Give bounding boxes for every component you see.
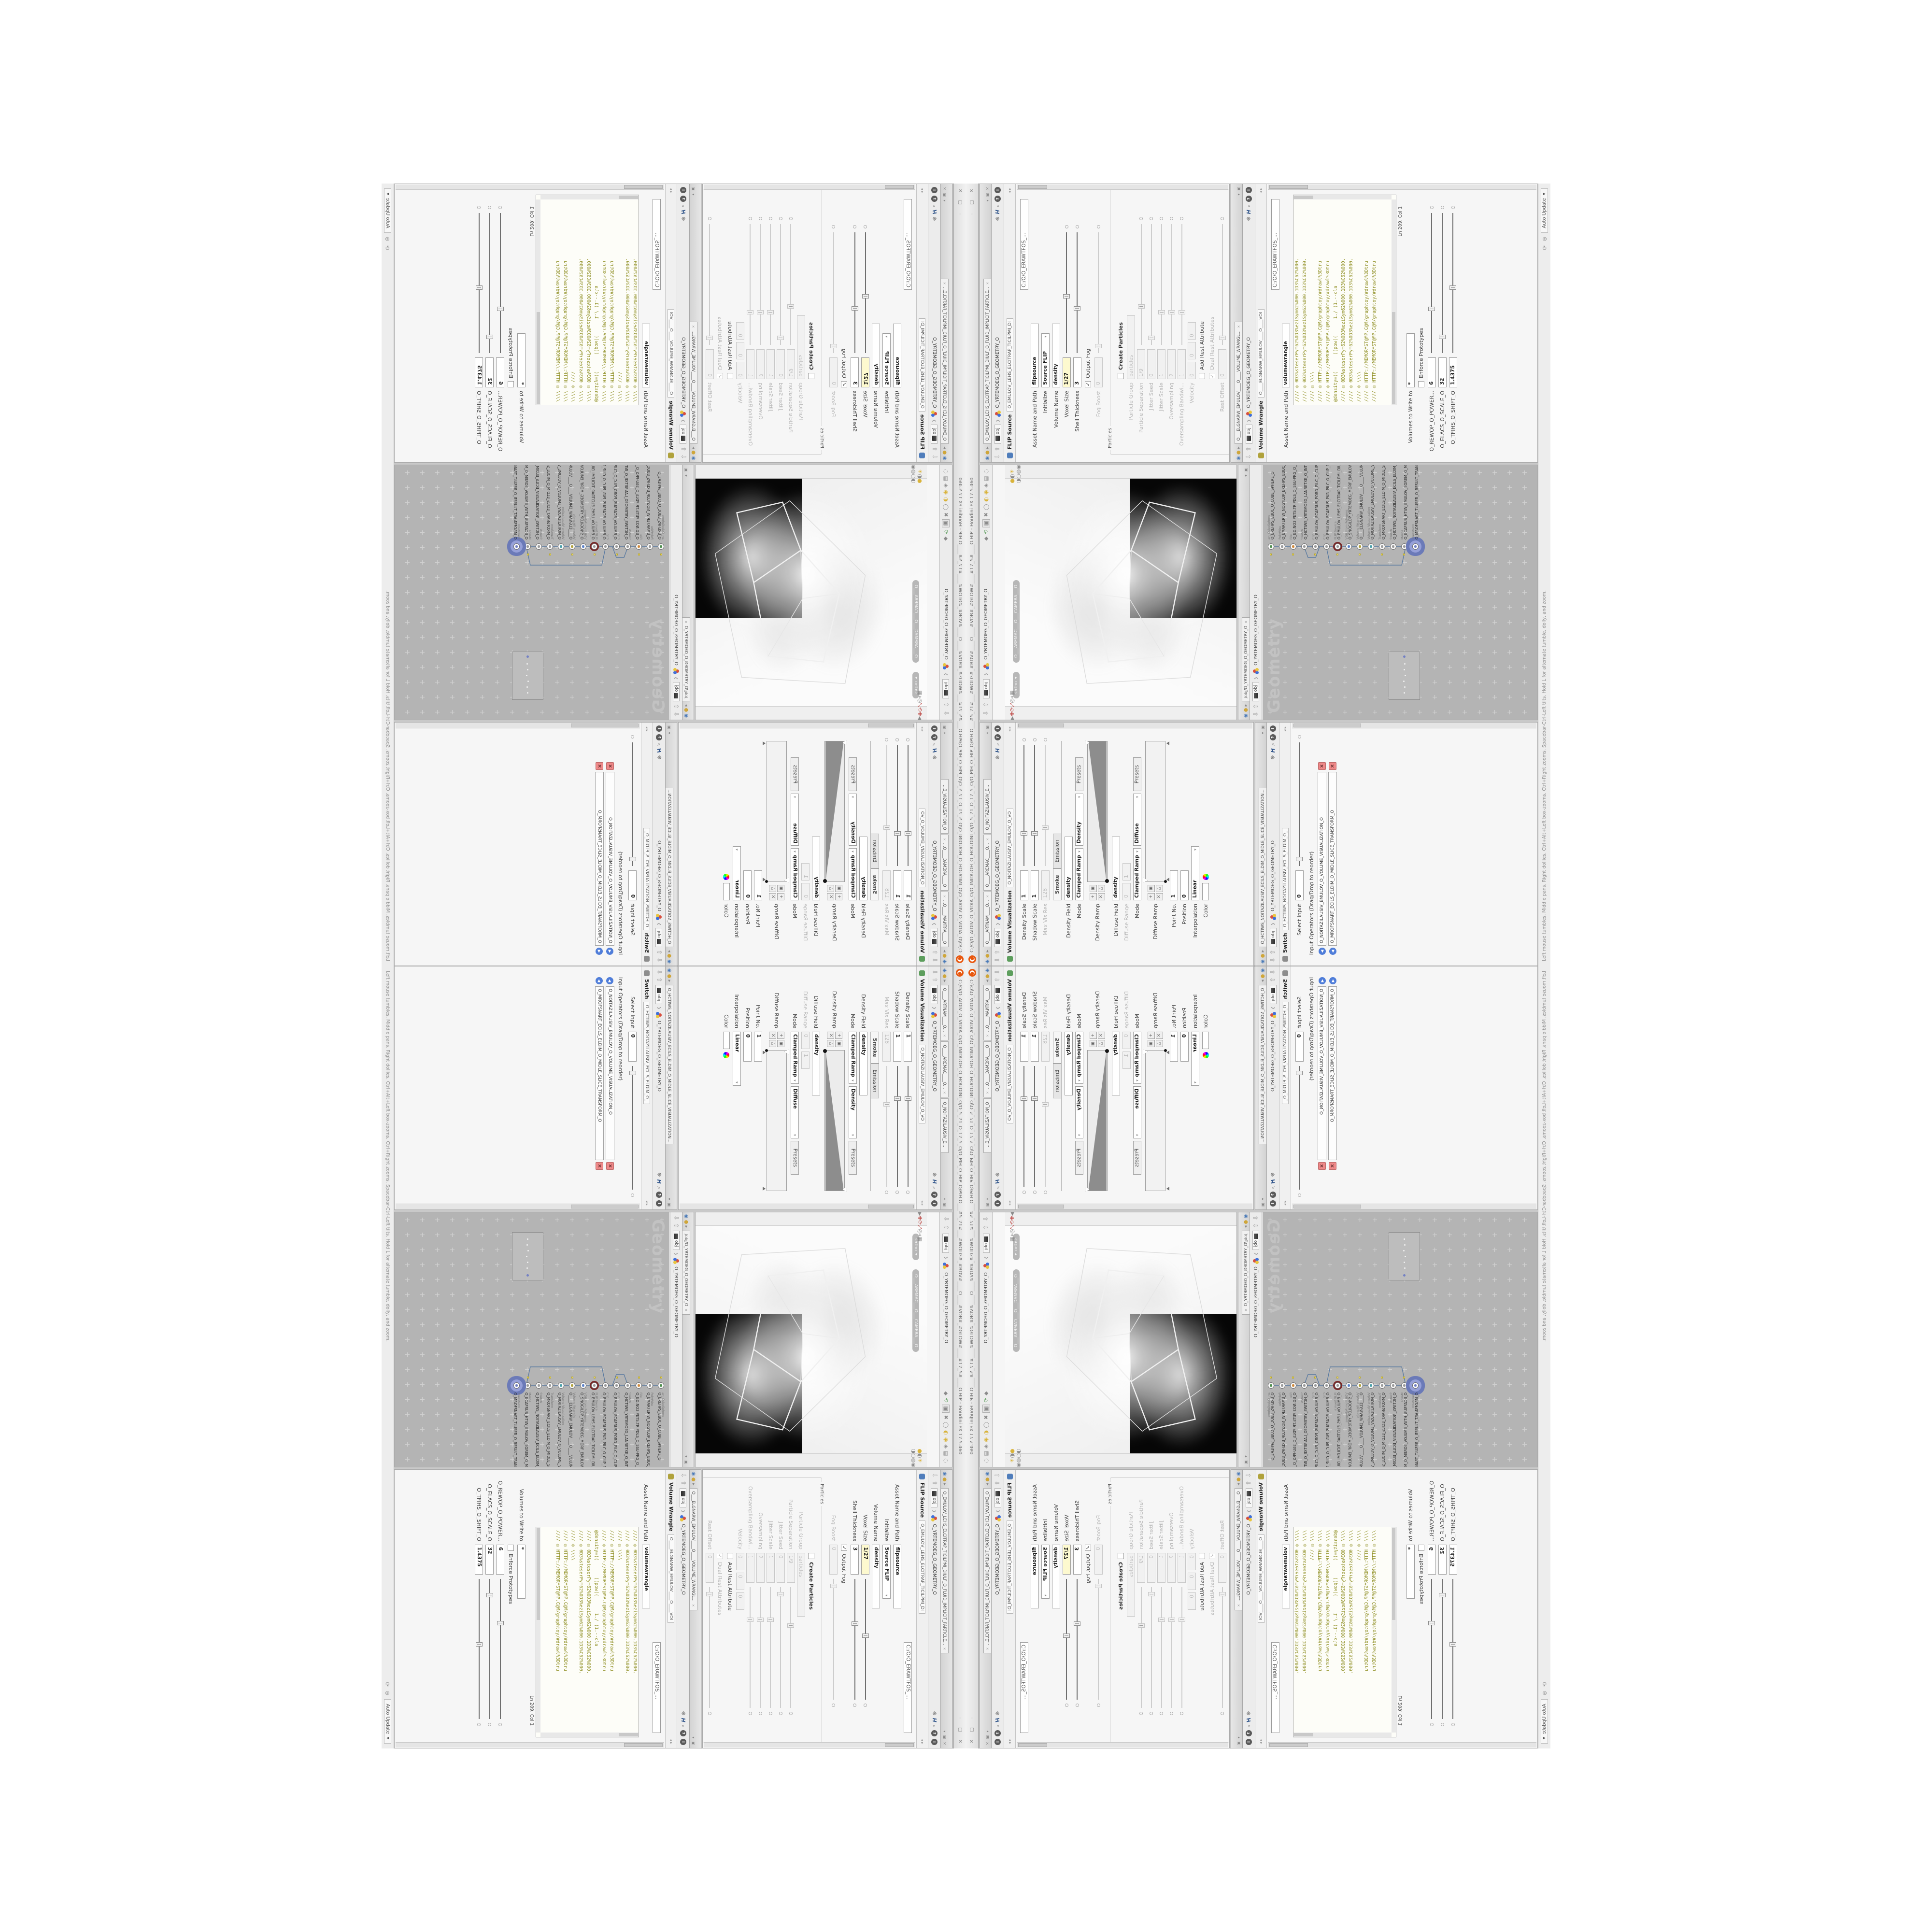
param-menu-nub[interactable] — [779, 1712, 782, 1715]
pane-tab[interactable]: O____AREMAC____O...✕ — [941, 1041, 949, 1097]
houdini-help-icon[interactable]: H — [994, 1718, 1001, 1722]
param-field[interactable]: 1 — [746, 349, 754, 379]
param-field[interactable]: particles — [797, 1553, 805, 1617]
param-field[interactable]: 128 — [1041, 1032, 1050, 1062]
param-menu-nub[interactable] — [1441, 206, 1444, 209]
reorder-input-button[interactable]: ◀ — [596, 948, 603, 955]
help-icon[interactable]: ? — [1270, 1192, 1276, 1198]
viewport-display-option-icon[interactable]: ● — [917, 479, 923, 483]
pane-menu-icon[interactable]: ◉ — [1261, 959, 1265, 964]
param-field[interactable]: 1/27 — [862, 1545, 870, 1575]
param-field[interactable]: 2 — [1167, 1553, 1176, 1583]
param-field[interactable]: 0 — [1094, 1545, 1103, 1575]
network-node[interactable]: ClipO_EMULOV_ECAFRUS_PORD_PILC_O_CLIP_DR… — [1310, 465, 1321, 550]
node-circle[interactable] — [1290, 1382, 1296, 1389]
presets-button[interactable]: Presets — [849, 1141, 857, 1175]
viewport-display-option-icon[interactable]: ◍ — [1015, 1458, 1022, 1463]
param-slider[interactable] — [1431, 213, 1432, 353]
cook-refresh-icon[interactable]: ⟳ — [1541, 1682, 1548, 1687]
param-slider[interactable] — [791, 1587, 792, 1708]
viewport-display-option-icon[interactable]: ● — [917, 1449, 923, 1453]
viewport-display-icon[interactable]: ✖ — [983, 1415, 989, 1420]
param-field[interactable]: 0 — [802, 1032, 810, 1049]
network-overview-map[interactable] — [1389, 652, 1420, 700]
pane-pin-icon[interactable]: ● — [683, 708, 688, 712]
param-field-2[interactable]: Diffuse — [791, 1086, 799, 1138]
param-menu-nub[interactable] — [885, 738, 889, 741]
param-field[interactable]: 6 — [1428, 357, 1436, 387]
node-circle[interactable] — [558, 543, 564, 550]
pane-tab[interactable]: O____ARTNAM____O...✕ — [983, 985, 991, 1041]
viewport-display-icon[interactable]: ◯ — [943, 504, 949, 510]
param-field[interactable]: * — [518, 1545, 526, 1599]
pane-menu-icon[interactable]: ◉ — [1236, 456, 1241, 460]
delete-input-button[interactable]: ✕ — [606, 762, 614, 770]
help-icon[interactable]: ? — [931, 734, 938, 740]
presets-button[interactable]: Presets — [791, 1141, 799, 1175]
help-icon[interactable]: ? — [931, 1192, 938, 1198]
viewport-display-option-icon[interactable]: ◉ — [1015, 1463, 1022, 1467]
breadcrumb-root[interactable]: obj — [1252, 682, 1259, 701]
node-circle[interactable] — [513, 1382, 520, 1389]
node-circle[interactable] — [1379, 543, 1385, 550]
param-slider[interactable] — [1442, 1579, 1443, 1719]
scrollbar[interactable] — [1292, 723, 1536, 728]
pane-shade-icon[interactable]: ▾ — [667, 732, 671, 734]
node-flag[interactable] — [527, 554, 529, 555]
param-field-3[interactable]: 0 — [736, 322, 744, 340]
param-menu-nub[interactable] — [1033, 1191, 1037, 1194]
param-menu-nub[interactable] — [864, 1704, 867, 1707]
viewport-display-option-icon[interactable]: ☀ — [1009, 1458, 1015, 1463]
param-field[interactable]: 1.4375 — [475, 1545, 483, 1575]
param-checkbox[interactable] — [808, 373, 814, 379]
param-field[interactable]: 128 — [1041, 870, 1050, 900]
network-node[interactable]: MergeO_ECAFRUS_HTIW_EMULOV_EGREM_O_MERGE… — [1399, 1382, 1410, 1467]
param-slider[interactable] — [1299, 1066, 1300, 1190]
houdini-help-icon[interactable]: H — [1246, 210, 1252, 214]
gear-icon[interactable]: ❋ — [656, 755, 662, 759]
param-slider[interactable] — [1181, 1587, 1182, 1708]
network-node[interactable]: TransformO_MROFSNART_ECILS_ELDIM_O_MIDLE… — [1377, 1382, 1388, 1467]
pane-tab[interactable]: O___ELGNARW_EMULOV____O____VOLUME_WRANGL… — [1235, 322, 1242, 444]
node-circle[interactable] — [1412, 543, 1419, 550]
param-field[interactable]: Clamped Ramp — [849, 848, 857, 900]
vex-code-editor[interactable]: //// ◎ 0D3%steserPym62%0D3%eziSym62%000.… — [1293, 195, 1396, 405]
param-menu-nub[interactable] — [1023, 738, 1026, 741]
pane-float-icon[interactable]: ▣ — [667, 1203, 671, 1207]
param-checkbox[interactable] — [727, 373, 733, 379]
param-field-2[interactable]: 1 — [1122, 1051, 1131, 1069]
breadcrumb-root[interactable]: obj — [931, 425, 938, 444]
ramp-key-marker[interactable] — [1105, 879, 1109, 883]
breadcrumb-root[interactable]: obj — [994, 928, 1001, 947]
network-node[interactable]: MergeO_ECAFRUS_HTIW_EMULOV_EGREM_O_MERGE… — [522, 1382, 533, 1467]
param-menu-nub[interactable] — [499, 206, 502, 209]
pane-pin-icon[interactable]: ● — [985, 451, 990, 455]
node-circle[interactable] — [625, 1382, 631, 1389]
node-name-tab[interactable]: O____ELGNARW_EMULOV____O____VOI — [1258, 1534, 1264, 1623]
param-menu-nub[interactable] — [1221, 1712, 1224, 1715]
info-icon[interactable]: i — [931, 1739, 938, 1745]
param-field[interactable]: 0 — [777, 349, 785, 379]
info-icon[interactable]: i — [994, 725, 1001, 732]
param-field[interactable]: * — [1406, 333, 1415, 387]
scrollbar[interactable] — [1017, 723, 1252, 728]
nav-forward-icon[interactable]: ⇧ — [1253, 1223, 1259, 1228]
info-icon[interactable]: i — [1270, 1200, 1276, 1207]
param-field[interactable]: 6 — [497, 1545, 505, 1575]
reorder-input-button[interactable]: ◀ — [1329, 948, 1336, 955]
node-circle[interactable] — [1279, 543, 1285, 550]
delete-input-button[interactable]: ✕ — [1318, 1162, 1326, 1170]
param-menu-nub[interactable] — [1150, 1712, 1153, 1715]
pane-pin-icon[interactable]: ● — [942, 1477, 947, 1482]
breadcrumb-root[interactable]: obj — [656, 928, 663, 947]
node-circle[interactable] — [647, 543, 653, 550]
viewport-tool-icon[interactable]: ◎ — [917, 1229, 923, 1234]
param-slider[interactable] — [1161, 224, 1162, 345]
network-node[interactable]: TransformO_MROFSNART_ECILS_ELDIM_O_MIDLE… — [544, 465, 555, 550]
info-icon[interactable]: i — [931, 725, 938, 732]
pane-tab[interactable]: O_EMULOV_LEHS_ELCITRAP_TICILPMI_DIULF_O_… — [983, 279, 991, 444]
pane-tab[interactable]: O____ARTNAM____O...✕ — [941, 985, 949, 1041]
ramp-add-button[interactable]: + — [835, 1032, 842, 1039]
ramp-delete-button[interactable]: ✕ — [1098, 893, 1105, 900]
viewport-display-option-icon[interactable]: ◉ — [910, 1463, 917, 1467]
param-slider[interactable] — [1077, 232, 1078, 353]
camera-view-pill[interactable]: O___AREMAC___O___CAMERA___O — [912, 580, 919, 663]
ramp-add-button[interactable]: + — [777, 893, 784, 900]
network-canvas[interactable]: Geometry an_CubeSphereO_EREHPS_EBUC_O_CU… — [1263, 1212, 1537, 1467]
node-flag[interactable] — [1292, 1377, 1294, 1378]
nav-back-icon[interactable]: ⇩ — [931, 454, 938, 459]
network-node[interactable]: SwitchO_HCTIWS_NOITAZILAUSIV_ECILS_ELDIM… — [533, 465, 544, 550]
ramp-options-button[interactable]: ▣ — [777, 1040, 784, 1047]
ramp-flyout-button[interactable]: △ — [1156, 885, 1163, 892]
node-name-tab[interactable]: O____ELGNARW_EMULOV____O____VOI — [1258, 309, 1264, 398]
viewport-display-icon[interactable]: ◈ — [943, 483, 949, 487]
scrollbar[interactable] — [1017, 1742, 1228, 1747]
ramp-flyout-button[interactable]: △ — [1156, 1040, 1163, 1047]
param-slider[interactable] — [1171, 224, 1172, 345]
network-canvas[interactable]: Geometry an_CubeSphereO_EREHPS_EBUC_O_CU… — [1263, 465, 1537, 720]
param-slider[interactable] — [1066, 1579, 1067, 1700]
param-slider[interactable] — [897, 1066, 898, 1187]
search-icon[interactable]: ⌕ — [931, 743, 938, 746]
viewport-tool-icon[interactable]: ⟳ — [1009, 1221, 1015, 1225]
param-field[interactable]: 0 — [830, 1545, 838, 1575]
param-slider[interactable] — [1141, 1587, 1142, 1708]
network-node[interactable]: PolyWireO_EMARFERIW_NOGYLOP_EREHPS_EBUC_… — [644, 1382, 655, 1467]
param-field[interactable]: 0 — [744, 870, 752, 900]
viewport-display-option-icon[interactable]: ◑ — [1015, 479, 1022, 483]
node-flag[interactable] — [549, 1377, 551, 1378]
viewport-display-icon[interactable]: ◉ — [983, 1437, 989, 1442]
delete-input-button[interactable]: ✕ — [1318, 762, 1326, 770]
param-field[interactable]: 0 — [1180, 870, 1189, 900]
viewport-display-option-icon[interactable]: ○ — [1015, 474, 1022, 479]
tab-smoke[interactable]: Smoke — [1053, 1032, 1061, 1064]
info-icon[interactable]: i — [931, 1200, 938, 1207]
param-field[interactable]: 1 — [1157, 1553, 1165, 1583]
param-field-2[interactable]: Diffuse — [1133, 1086, 1141, 1138]
vex-code-editor[interactable]: //// ◎ 0D3%steserPym62%0D3%eziSym62%000.… — [1293, 1527, 1396, 1737]
houdini-help-icon[interactable]: H — [1246, 1718, 1252, 1722]
network-node[interactable]: SwitchO_HCTIWS_YRTEMOEG_LANRETXE_O_INTER… — [622, 465, 633, 550]
ramp-options-button[interactable]: ▣ — [1148, 885, 1155, 892]
node-flag[interactable] — [1403, 1377, 1405, 1378]
window-title-bar[interactable]: C:/O/O_AIDIV_O_VIDIA_O/O_INIDUOH_O_HOUDI… — [966, 184, 979, 966]
param-field[interactable]: density — [860, 1032, 868, 1095]
ramp-handle[interactable] — [1143, 878, 1148, 883]
help-icon[interactable]: ? — [1270, 734, 1276, 740]
pane-menu-icon[interactable]: ◉ — [985, 1472, 990, 1476]
code-vscrollbar[interactable] — [1293, 195, 1392, 199]
scrollbar[interactable] — [1268, 185, 1536, 190]
param-field[interactable]: 0 — [1094, 357, 1103, 387]
node-circle[interactable] — [1323, 1382, 1330, 1389]
node-flag[interactable] — [594, 1377, 596, 1378]
help-icon[interactable]: ? — [931, 196, 938, 202]
breadcrumb-root[interactable]: obj — [1246, 1488, 1252, 1507]
pane-menu-icon[interactable]: ◉ — [667, 968, 671, 973]
param-slider[interactable] — [1452, 1579, 1453, 1719]
slider-thumb[interactable] — [1021, 1096, 1027, 1101]
nav-forward-icon[interactable]: ⇧ — [1246, 1480, 1252, 1486]
node-circle[interactable] — [636, 1382, 642, 1389]
pane-shade-icon[interactable]: ▾ — [1261, 1198, 1265, 1200]
node-name-tab[interactable]: O_NOITAZILAUSIV_EMULOV_O_VO — [919, 809, 926, 888]
param-field[interactable]: * — [518, 333, 526, 387]
node-flag[interactable] — [1359, 1377, 1361, 1378]
pane-tab[interactable]: O___ELGNARW_EMULOV____O____VOLUME_WRANGL… — [1235, 1488, 1242, 1610]
presets-button[interactable]: Presets — [849, 757, 857, 791]
nav-back-icon[interactable]: ⇩ — [994, 957, 1001, 963]
node-flag[interactable] — [660, 1377, 662, 1378]
pane-pin-icon[interactable]: ● — [1236, 451, 1241, 455]
node-circle[interactable] — [658, 543, 664, 550]
network-node[interactable]: an_CubeSphereO_EREHPS_EBUC_O_CUBE_SPHERE… — [655, 1382, 667, 1467]
nav-forward-icon[interactable]: ⇧ — [983, 702, 989, 707]
viewport-tool-icon[interactable]: ✚ — [917, 1216, 923, 1220]
pane-pin-icon[interactable]: ● — [942, 451, 947, 455]
ramp-options-button[interactable]: ▣ — [835, 1040, 842, 1047]
param-menu-nub[interactable] — [1430, 206, 1434, 209]
param-field[interactable]: 0 — [744, 1032, 752, 1062]
node-name-tab[interactable]: O_HCTIWS_NOITAZILAUSIV_ECILS_ELDIM_O_ — [1282, 828, 1289, 930]
param-menu-nub[interactable] — [789, 1712, 793, 1715]
nav-back-icon[interactable]: ⇩ — [943, 710, 949, 716]
param-field-3[interactable]: 0 — [1188, 322, 1196, 340]
viewport-display-icon[interactable]: ▣ — [942, 1405, 950, 1412]
node-circle[interactable] — [1335, 1382, 1341, 1389]
search-icon[interactable]: ⌕ — [994, 204, 1001, 207]
param-checkbox[interactable]: ✓ — [1209, 1553, 1215, 1559]
pane-pin-icon[interactable]: ● — [985, 974, 990, 979]
param-field[interactable]: 0 — [736, 1553, 744, 1570]
param-slider[interactable] — [1141, 224, 1142, 345]
ramp-delete-button[interactable]: ✕ — [827, 1032, 834, 1039]
network-node[interactable]: Volume VisualizationO_NOITAZILAUSIV_EMUL… — [1365, 1382, 1377, 1467]
nav-back-icon[interactable]: ⇩ — [673, 1215, 680, 1221]
param-field[interactable]: density — [872, 324, 881, 387]
param-slider[interactable] — [770, 224, 771, 345]
viewport-display-icon[interactable]: ▣ — [982, 1405, 990, 1412]
code-hscrollbar[interactable] — [536, 1527, 540, 1733]
pane-tab[interactable]: O_NOITAZILAUSIV_E... — [941, 1098, 949, 1153]
search-icon[interactable]: ⌕ — [994, 1186, 1001, 1189]
param-slider[interactable] — [632, 1066, 633, 1190]
density-ramp-widget[interactable] — [1087, 741, 1108, 882]
viewport-display-icon[interactable]: ▣ — [982, 519, 990, 527]
search-icon[interactable]: ⌕ — [680, 204, 687, 207]
scrollbar[interactable] — [396, 723, 640, 728]
nav-back-icon[interactable]: ⇩ — [994, 1473, 1001, 1478]
param-field[interactable]: Clamped Ramp — [791, 848, 799, 900]
delete-input-button[interactable]: ✕ — [1329, 1162, 1336, 1170]
param-field[interactable]: Linear — [733, 1032, 741, 1086]
network-overview-map[interactable] — [512, 1232, 543, 1280]
param-slider[interactable] — [1151, 1587, 1152, 1708]
node-circle[interactable] — [613, 1382, 620, 1389]
houdini-help-icon[interactable]: H — [1270, 748, 1276, 753]
ramp-delete-button[interactable]: ✕ — [1156, 893, 1163, 900]
color-wheel-icon[interactable] — [1203, 874, 1209, 880]
param-field[interactable]: 1 — [1020, 870, 1028, 900]
pane-float-icon[interactable]: ▣ — [1261, 1203, 1265, 1207]
nav-forward-icon[interactable]: ⇧ — [931, 446, 938, 452]
gear-icon[interactable]: ❋ — [1246, 216, 1252, 221]
param-slider[interactable] — [781, 224, 781, 345]
param-field-3[interactable]: 0 — [1188, 1592, 1196, 1610]
diffuse-ramp-widget[interactable] — [1145, 741, 1165, 882]
param-field[interactable]: 1 — [1170, 1032, 1178, 1062]
network-node[interactable]: FLIP SourceO_EMULOV_LEHS_ELCITRAP_TICILP… — [1332, 1382, 1343, 1467]
param-field[interactable]: 1 — [894, 870, 902, 900]
param-slider[interactable] — [781, 1587, 781, 1708]
viewport-display-icon[interactable]: ✖ — [943, 1415, 949, 1420]
nav-back-icon[interactable]: ⇩ — [656, 957, 662, 963]
pane-pin-icon[interactable]: ● — [667, 974, 671, 979]
pane-play-icon[interactable]: ▸ — [942, 980, 947, 982]
param-field[interactable]: 3 — [1073, 357, 1081, 387]
houdini-help-icon[interactable]: H — [656, 1179, 662, 1184]
pane-pin-icon[interactable]: ● — [1236, 1477, 1241, 1482]
node-flag[interactable] — [1381, 1377, 1383, 1378]
viewport-tool-icon[interactable]: ▦ — [1009, 690, 1015, 695]
node-flag[interactable] — [594, 554, 596, 555]
reorder-input-button[interactable]: ◀ — [1329, 977, 1336, 984]
pane-play-icon[interactable]: ▸ — [1261, 950, 1265, 952]
breadcrumb-root[interactable]: obj — [673, 1231, 680, 1250]
param-field[interactable]: 1/27 — [1063, 1545, 1071, 1575]
search-icon[interactable]: ⌕ — [931, 204, 938, 207]
network-node[interactable]: ClipO_EMULOV_ECAFRUS_PKR_PILC_O_CLIP_PKR… — [1321, 465, 1332, 550]
nav-back-icon[interactable]: ⇩ — [931, 957, 938, 963]
search-icon[interactable]: ⌕ — [1246, 1725, 1252, 1728]
tab-scroll-icons[interactable]: ◂ ▸ — [1008, 1200, 1012, 1206]
param-slider[interactable] — [500, 213, 501, 353]
color-swatch[interactable] — [1202, 1032, 1209, 1049]
param-field[interactable]: 1 — [1178, 349, 1186, 379]
pane-menu-icon[interactable]: ◉ — [985, 968, 990, 973]
param-field[interactable]: Linear — [1191, 1032, 1199, 1086]
tab-scroll-icons[interactable]: ◂ ▸ — [920, 726, 924, 732]
pane-pin-icon[interactable]: ● — [942, 974, 947, 979]
param-field[interactable]: C:/O/O_ERAWTFOS_... — [1020, 199, 1028, 290]
code-hscrollbar[interactable] — [1392, 1527, 1396, 1733]
param-field[interactable]: Linear — [733, 846, 741, 900]
code-hscrollbar[interactable] — [536, 199, 540, 405]
pane-tab[interactable]: O_HCTIWS_NOITAZILAUSIV_ECILS_ELDIM_O_MID… — [1259, 788, 1266, 948]
param-field-2[interactable]: Diffuse — [791, 794, 799, 846]
help-icon[interactable]: ? — [1246, 196, 1252, 202]
window-title-bar[interactable]: C:/O/O_AIDIV_O_VIDIA_O/O_INIDUOH_O_HOUDI… — [953, 966, 966, 1748]
param-slider[interactable] — [886, 745, 887, 866]
param-checkbox[interactable] — [1199, 373, 1205, 379]
pane-pin-icon[interactable]: ● — [985, 954, 990, 958]
node-circle[interactable] — [1312, 543, 1319, 550]
param-slider[interactable] — [1222, 224, 1223, 345]
cook-refresh-icon[interactable]: ⟳ — [384, 245, 391, 250]
pane-play-icon[interactable]: ▸ — [691, 1483, 696, 1485]
help-icon[interactable]: ? — [994, 734, 1001, 740]
pane-pin-icon[interactable]: ● — [683, 1220, 688, 1224]
param-field[interactable]: 32 — [486, 1545, 494, 1575]
network-node[interactable]: TransformO_MROFSNART_ECILS_ELDIM_O_MIDLE… — [544, 1382, 555, 1467]
viewport-display-option-icon[interactable]: ◉ — [910, 465, 917, 469]
param-menu-nub[interactable] — [1451, 1723, 1455, 1726]
help-icon[interactable]: ? — [680, 1730, 686, 1736]
param-slider[interactable] — [710, 1587, 710, 1708]
nav-back-icon[interactable]: ⇩ — [1270, 969, 1276, 975]
breadcrumb-node[interactable]: O_YRTEMOEG_O_GEOMETRY_O — [995, 840, 1000, 911]
nav-back-icon[interactable]: ⇩ — [943, 1216, 949, 1222]
info-icon[interactable]: i — [656, 725, 662, 732]
ramp-add-button[interactable]: + — [777, 1032, 784, 1039]
viewport-tool-icon[interactable]: ✚ — [917, 712, 923, 716]
node-circle[interactable] — [602, 1382, 609, 1389]
param-field[interactable]: C:/O/O_ERAWTFOS_... — [904, 1642, 912, 1733]
update-mode-selector[interactable]: Auto Update▾ — [384, 1699, 391, 1744]
diffuse-ramp-widget[interactable] — [1145, 1050, 1165, 1191]
param-field[interactable]: flipsource — [1031, 324, 1039, 387]
param-field[interactable]: 1 — [767, 349, 775, 379]
param-field[interactable]: 32 — [1438, 357, 1447, 387]
pane-pin-icon[interactable]: ● — [1244, 1220, 1249, 1224]
param-field[interactable]: Source FLIP — [1041, 333, 1050, 387]
node-flag[interactable] — [1270, 1377, 1272, 1378]
node-circle[interactable] — [536, 1382, 542, 1389]
viewport-tool-icon[interactable]: ⟳ — [917, 1221, 923, 1225]
param-menu-nub[interactable] — [864, 225, 867, 228]
param-checkbox[interactable] — [808, 1553, 814, 1559]
ramp-flyout-button[interactable]: △ — [769, 885, 776, 892]
network-node[interactable]: SwitchO_HCTIWS_YRTEMOEG_LANRETXE_O_INTER… — [622, 1382, 633, 1467]
node-circle[interactable] — [1279, 1382, 1285, 1389]
param-field[interactable]: 0 — [629, 1032, 637, 1062]
param-slider[interactable] — [865, 232, 866, 353]
node-name-tab[interactable]: O_NOITAZILAUSIV_EMULOV_O_VO — [1007, 809, 1013, 888]
pane-play-icon[interactable]: ▸ — [667, 950, 671, 952]
slider-thumb[interactable] — [883, 825, 890, 830]
param-field[interactable]: particles — [1127, 315, 1135, 379]
node-flag[interactable] — [638, 554, 640, 555]
viewport-display-icon[interactable]: ▤ — [983, 1451, 989, 1456]
breadcrumb-node[interactable]: O_YRTEMOEG_O_GEOMETRY_O — [932, 840, 937, 911]
param-slider[interactable] — [750, 1587, 751, 1708]
